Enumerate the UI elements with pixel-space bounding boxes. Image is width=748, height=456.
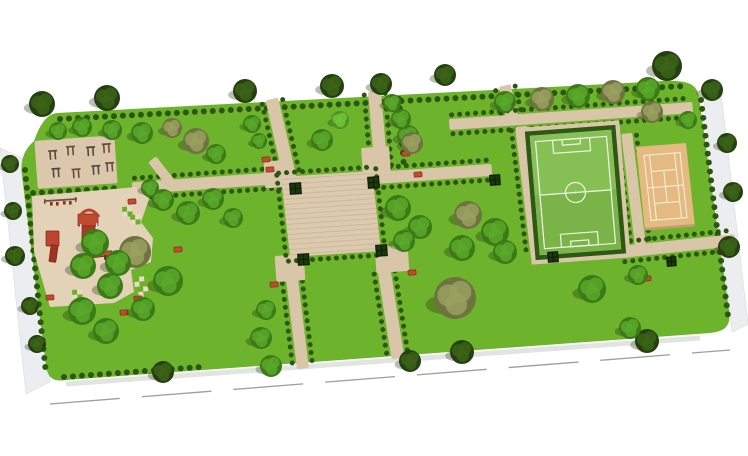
tree	[89, 85, 120, 111]
tree-canopy-highlight	[239, 88, 251, 100]
tree-canopy-highlight	[707, 88, 718, 99]
tree-canopy-highlight	[248, 122, 257, 131]
tree-canopy-highlight	[642, 86, 654, 98]
checker-cell	[135, 219, 140, 224]
bench	[46, 295, 54, 301]
checker-cell	[138, 287, 143, 292]
tree-canopy-highlight	[641, 338, 653, 350]
swing-seat	[69, 201, 72, 205]
park-master-plan	[0, 0, 748, 456]
play-structure	[80, 224, 82, 232]
tree	[1, 246, 25, 266]
fitness-surface	[34, 135, 117, 188]
tree-canopy-highlight	[326, 83, 338, 95]
checker-cell	[122, 207, 127, 212]
tree-canopy-highlight	[6, 162, 15, 171]
tree-canopy-highlight	[107, 128, 117, 138]
planter-box	[490, 175, 501, 186]
tree-canopy-highlight	[336, 118, 345, 127]
tree-canopy-highlight	[440, 73, 451, 84]
tree	[24, 91, 55, 117]
tree-canopy-highlight	[586, 286, 601, 301]
tree-canopy-highlight	[190, 138, 204, 152]
checker-cell	[143, 291, 148, 296]
tree-canopy-highlight	[89, 240, 104, 255]
tennis-court	[636, 143, 695, 231]
tree-canopy-highlight	[499, 249, 511, 261]
tree-canopy-highlight	[112, 260, 126, 274]
tree-canopy-highlight	[137, 306, 149, 318]
bench	[408, 270, 416, 276]
tree-canopy-highlight	[228, 216, 238, 226]
planter-box	[368, 177, 380, 189]
tree-canopy-highlight	[392, 205, 406, 219]
tree-canopy-highlight	[407, 141, 418, 152]
swing-seat	[56, 202, 59, 206]
swing-post	[44, 199, 46, 204]
checker-cell	[127, 206, 132, 211]
tree-canopy-highlight	[158, 198, 169, 209]
tree-canopy-highlight	[33, 342, 42, 351]
planter-box	[376, 245, 388, 257]
tree-canopy-highlight	[255, 139, 263, 147]
planter-box	[290, 183, 302, 195]
tree	[646, 51, 682, 81]
tree-canopy-highlight	[256, 336, 267, 347]
tree-canopy-highlight	[456, 349, 468, 361]
checker-cell	[77, 289, 82, 294]
checker-cell	[134, 277, 139, 282]
tree-canopy-highlight	[100, 328, 114, 342]
planter-box	[298, 254, 310, 266]
tree-canopy-highlight	[728, 190, 738, 200]
tree-canopy-highlight	[26, 304, 35, 313]
tree-canopy-highlight	[101, 95, 115, 109]
tree-canopy-highlight	[684, 118, 693, 127]
tree-canopy-highlight	[647, 110, 658, 121]
checker-cell	[139, 281, 144, 286]
tree-canopy-highlight	[399, 239, 410, 250]
tree-canopy-highlight	[660, 63, 676, 79]
swing-seat	[63, 201, 66, 205]
tree-canopy-highlight	[388, 101, 397, 110]
tree-canopy-highlight	[445, 293, 467, 315]
tree	[228, 79, 257, 103]
tree-canopy-highlight	[182, 210, 194, 222]
tree-canopy-highlight	[266, 364, 277, 375]
tree-canopy-highlight	[76, 308, 91, 323]
tree-canopy-highlight	[167, 126, 177, 136]
soccer-field	[520, 120, 631, 264]
checker-cell	[139, 276, 144, 281]
swing-seat	[50, 202, 53, 206]
tree	[315, 74, 344, 98]
tree-canopy-highlight	[396, 117, 406, 127]
play-structure	[46, 231, 59, 246]
tree-canopy-highlight	[500, 100, 511, 111]
swing-post	[75, 197, 77, 202]
tree-canopy-highlight	[158, 370, 169, 381]
park-plan-canvas	[0, 0, 748, 456]
bench	[414, 172, 422, 178]
checker-cell	[135, 214, 140, 219]
tree-canopy-highlight	[208, 197, 219, 208]
tree-canopy-highlight	[633, 273, 643, 283]
tree-canopy-highlight	[414, 224, 426, 236]
checker-tile	[130, 214, 141, 225]
tree-canopy-highlight	[536, 96, 548, 108]
checker-cell	[134, 282, 139, 287]
bench	[266, 167, 274, 173]
tree-canopy-highlight	[724, 245, 735, 256]
tree-canopy-highlight	[317, 138, 328, 149]
checker-cell	[122, 212, 127, 217]
bench	[128, 199, 136, 205]
planter-box	[548, 252, 559, 263]
tree-canopy-highlight	[137, 131, 148, 142]
bench	[270, 282, 278, 288]
tree	[430, 64, 456, 86]
tree-canopy-highlight	[376, 82, 387, 93]
tree-canopy-highlight	[10, 254, 20, 264]
tree-canopy-highlight	[405, 359, 416, 370]
tree-canopy-highlight	[9, 209, 18, 218]
tree-canopy-highlight	[161, 278, 177, 294]
planter-box	[667, 257, 677, 267]
tree-canopy-highlight	[104, 283, 118, 297]
tree-canopy-highlight	[54, 129, 63, 138]
checker-cell	[72, 290, 77, 295]
tree-canopy-highlight	[456, 245, 470, 259]
tree-canopy-highlight	[36, 101, 50, 115]
checker-cell	[130, 220, 135, 225]
pitch-turf-shade	[535, 190, 621, 255]
tree-canopy-highlight	[77, 125, 87, 135]
checker-cell	[130, 215, 135, 220]
tree-canopy-highlight	[211, 152, 221, 162]
bench	[262, 157, 270, 163]
bench	[174, 247, 182, 253]
tree-canopy-highlight	[462, 212, 477, 227]
tree-canopy-highlight	[625, 326, 636, 337]
tree-canopy-highlight	[607, 89, 619, 101]
tree-canopy-highlight	[722, 141, 732, 151]
tree-canopy-highlight	[77, 263, 91, 277]
checker-tile	[138, 286, 149, 297]
tree-canopy-highlight	[572, 93, 584, 105]
tree	[0, 202, 22, 220]
tree-canopy-highlight	[261, 308, 271, 318]
checker-tile	[134, 276, 145, 287]
fitness-area	[34, 135, 117, 188]
